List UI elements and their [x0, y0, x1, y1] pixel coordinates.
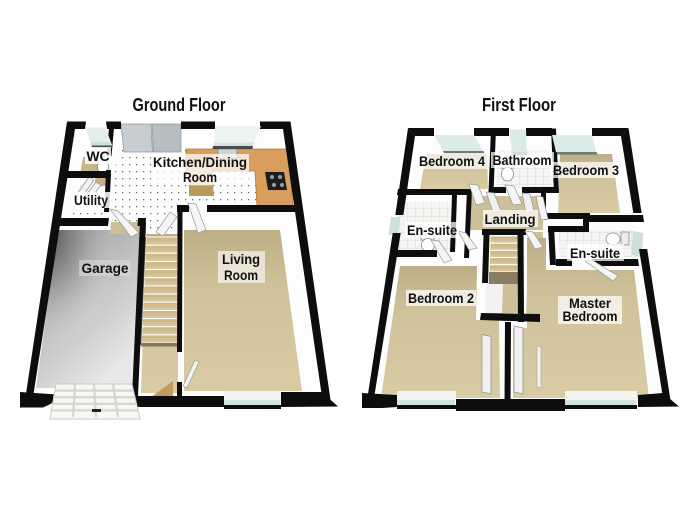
svg-text:Garage: Garage — [82, 260, 129, 276]
svg-text:First Floor: First Floor — [482, 95, 556, 115]
svg-text:Bedroom 4: Bedroom 4 — [419, 153, 485, 169]
svg-text:Bedroom: Bedroom — [563, 308, 618, 324]
svg-text:Room: Room — [224, 267, 258, 283]
svg-text:Bathroom: Bathroom — [493, 152, 552, 168]
svg-text:En-suite: En-suite — [407, 222, 457, 238]
svg-text:Utility: Utility — [74, 192, 108, 208]
svg-text:Bedroom 2: Bedroom 2 — [408, 290, 474, 306]
svg-text:WC: WC — [86, 148, 109, 164]
svg-text:Bedroom 3: Bedroom 3 — [553, 162, 619, 178]
svg-text:Ground Floor: Ground Floor — [133, 95, 226, 115]
svg-text:Room: Room — [183, 169, 217, 185]
svg-text:Kitchen/Dining: Kitchen/Dining — [153, 154, 247, 170]
svg-text:En-suite: En-suite — [570, 245, 620, 261]
svg-text:Living: Living — [222, 251, 260, 267]
svg-text:Landing: Landing — [485, 211, 536, 227]
